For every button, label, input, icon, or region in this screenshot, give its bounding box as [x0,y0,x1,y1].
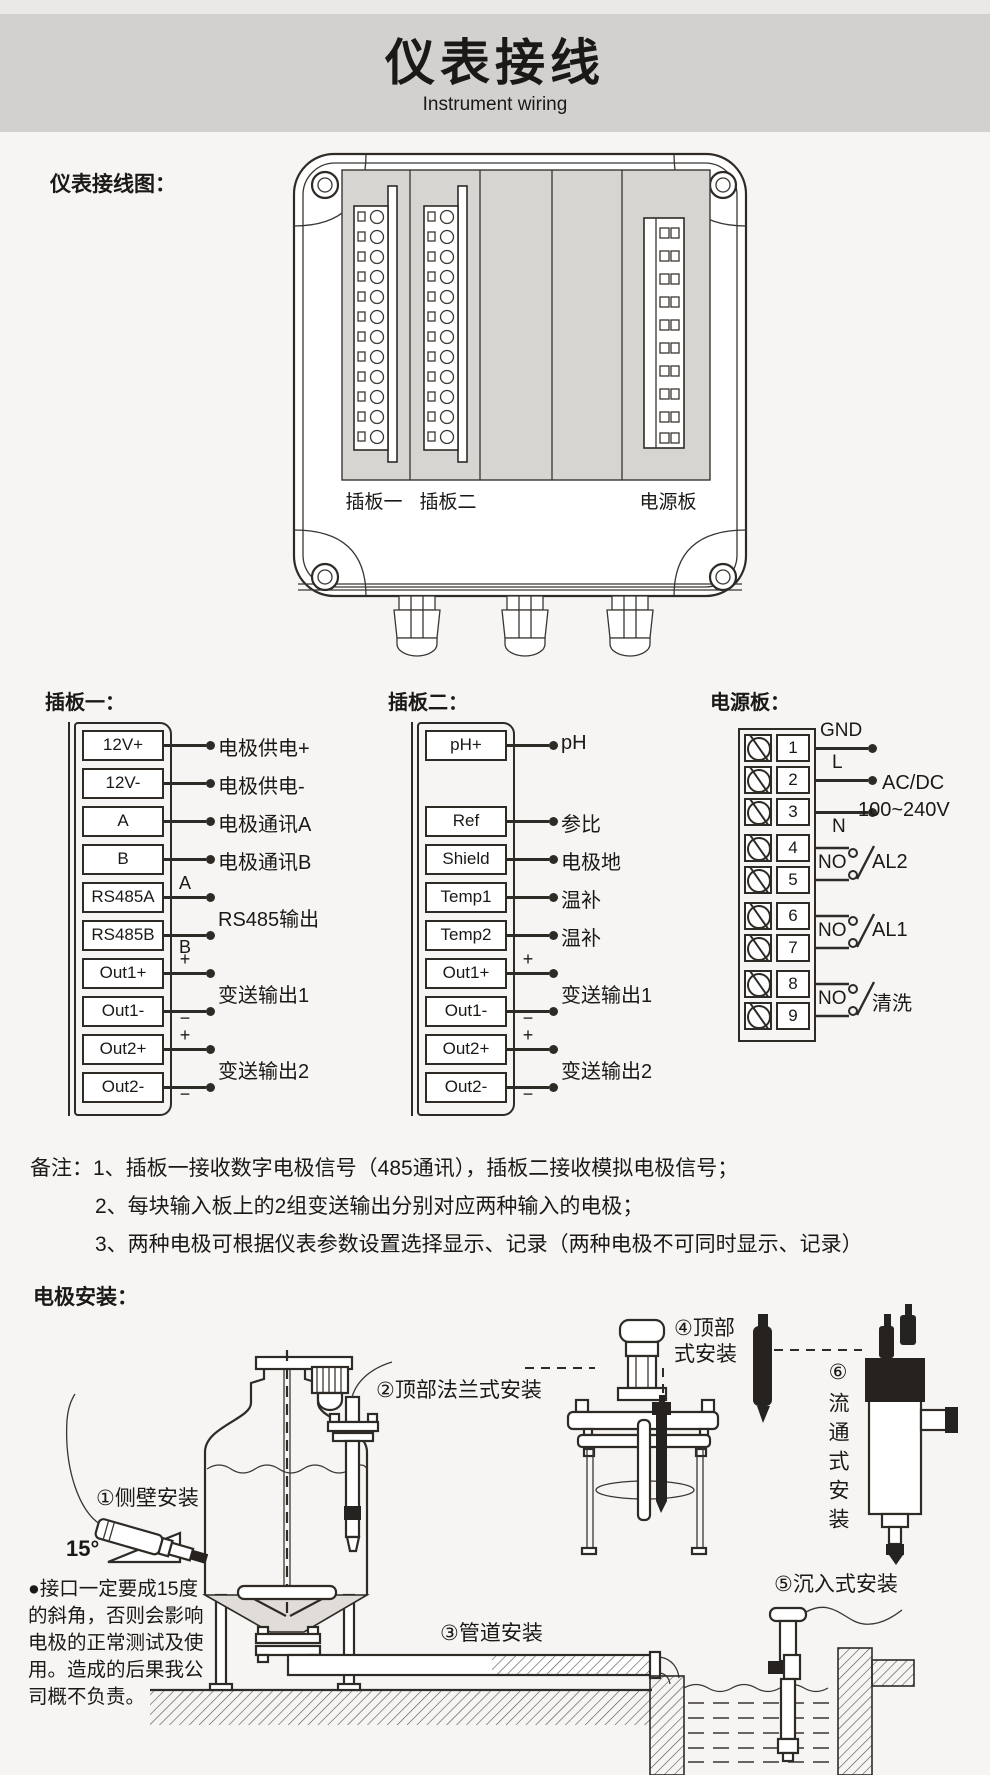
terminal-box: Out2+ [82,1034,164,1065]
wire [164,972,206,975]
terminal-number: 5 [776,866,810,894]
terminal-box: Shield [425,844,507,875]
notes-prefix: 备注： [30,1157,93,1180]
screw-terminal-icon [744,798,772,826]
wire-mark-l: L [832,752,843,774]
install-label-5: ⑤沉入式安装 [774,1572,898,1598]
wire [816,779,868,782]
terminal-box: Out1- [82,996,164,1027]
board1-title: 插板一： [45,686,125,715]
stirred-tank [205,1350,367,1690]
power-board-diagram: 电源板： 1 2 3 4 5 6 7 8 9 GND L N AC/DC 100… [700,680,990,1130]
instrument-enclosure-diagram: 插板一 插板二 电源板 [288,140,758,685]
wire [164,744,206,747]
wire-label: 参比 [561,808,601,837]
terminal-box: Temp2 [425,920,507,951]
board2-strip-edge [411,722,413,1116]
wire [816,747,868,750]
screw-terminal-icon [744,934,772,962]
wire [507,858,549,861]
wire-label: pH [561,732,587,755]
wire-label: 电极通讯B [218,846,311,875]
terminal-number: 2 [776,766,810,794]
slot1-label: 插板一 [345,491,402,513]
install-label-6: ⑥流通式安装 [822,1360,852,1570]
wire-mark-plus: + [172,949,198,970]
terminal-box: Temp1 [425,882,507,913]
terminal-box: Out1+ [82,958,164,989]
page-title: 仪表接线 [0,14,990,90]
wire-label: 变送输出2 [561,1055,652,1084]
terminal-box: pH+ [425,730,507,761]
wire-mark-plus: + [172,1025,198,1046]
cable-glands [394,596,653,656]
wiring-diagram-section-label: 仪表接线图： [50,168,176,198]
power-board-title: 电源板： [710,686,790,715]
relay-label-al1: AL1 [872,919,908,942]
screw-terminal-icon [744,902,772,930]
wire [164,782,206,785]
wire-label: 电极供电+ [218,732,310,761]
terminal-number: 7 [776,934,810,962]
slot2-terminal-strip [424,186,467,462]
screw-terminal-icon [744,734,772,762]
flow-cell [865,1304,958,1565]
install-label-3: ③管道安装 [440,1621,543,1647]
wire-mark-minus: − [515,1084,541,1105]
screw-terminal-icon [744,766,772,794]
install-angle-label: 15° [66,1536,99,1562]
electrode-probe [753,1314,772,1423]
no-mark: NO [818,988,847,1010]
terminal-box: B [82,844,164,875]
wire-label: 电极地 [561,846,621,875]
wire [164,820,206,823]
terminal-number: 3 [776,798,810,826]
wire [507,820,549,823]
power-slot-label: 电源板 [639,491,696,513]
terminal-box: Out1+ [425,958,507,989]
wire-label: 温补 [561,884,601,913]
no-mark: NO [818,920,847,942]
notes-line-2: 2、每块输入板上的2组变送输出分别对应两种输入的电极； [95,1190,643,1220]
no-mark: NO [818,852,847,874]
screw-terminal-icon [744,1002,772,1030]
power-terminal-strip [644,218,684,448]
terminal-box: RS485B [82,920,164,951]
wire-mark-gnd: GND [820,720,862,742]
terminal-box: Ref [425,806,507,837]
wire-label: 电极供电- [218,770,305,799]
wire-mark-a: A [172,873,198,894]
wire [164,896,206,899]
terminal-number: 9 [776,1002,810,1030]
screw-terminal-icon [744,970,772,998]
wire-mark-minus: − [172,1084,198,1105]
wire-label: 变送输出2 [218,1055,309,1084]
board1-strip-edge [68,722,70,1116]
top-strip [0,0,990,14]
wire [507,896,549,899]
wire-label: 温补 [561,922,601,951]
terminal-box: Out2- [425,1072,507,1103]
board2-diagram: 插板二： pH+ Ref Shield Temp1 Temp2 Out1+ Ou… [385,680,715,1130]
wire [164,1048,206,1051]
terminal-box: A [82,806,164,837]
wire [164,858,206,861]
slot1-terminal-strip [354,186,397,462]
acdc-label: AC/DC [882,772,944,795]
terminal-box: 12V- [82,768,164,799]
wire-mark-n: N [832,816,846,838]
wire [507,1048,549,1051]
terminal-number: 8 [776,970,810,998]
wire [507,934,549,937]
terminal-number: 1 [776,734,810,762]
board1-diagram: 插板一： 12V+ 12V- A B RS485A RS485B Out1+ O… [42,680,372,1130]
terminal-box: 12V+ [82,730,164,761]
wire-mark-plus: + [515,1025,541,1046]
notes-line-3: 3、两种电极可根据仪表参数设置选择显示、记录（两种电极不可同时显示、记录） [95,1228,863,1258]
voltage-range-label: 100~240V [858,799,950,822]
wire [507,744,549,747]
wire-label: 变送输出1 [561,979,652,1008]
terminal-number: 4 [776,834,810,862]
install-label-2: ②顶部法兰式安装 [376,1378,542,1404]
terminal-box: Out1- [425,996,507,1027]
slot2-label: 插板二 [419,491,476,513]
wire-label: 电极通讯A [218,808,311,837]
board2-title: 插板二： [388,686,468,715]
notes-line-1: 备注：1、插板一接收数字电极信号（485通讯），插板二接收模拟电极信号； [30,1152,738,1182]
terminal-box: Out2+ [425,1034,507,1065]
header-banner: 仪表接线 Instrument wiring [0,14,990,132]
note-item: 1、插板一接收数字电极信号（485通讯），插板二接收模拟电极信号； [93,1157,738,1180]
install-label-4: ④顶部 式安装 [674,1316,737,1368]
wire-label: 变送输出1 [218,979,309,1008]
terminal-box: RS485A [82,882,164,913]
terminal-box: Out2- [82,1072,164,1103]
install-warning-text: ●接口一定要成15度 的斜角，否则会影响 电极的正常测试及使 用。造成的后果我公… [28,1576,228,1711]
relay-label-wash: 清洗 [872,987,912,1016]
relay-label-al2: AL2 [872,851,908,874]
screw-terminal-icon [744,866,772,894]
install-label-1: ①侧壁安装 [96,1486,199,1512]
page-subtitle: Instrument wiring [0,94,990,116]
wire [507,972,549,975]
wire-mark-plus: + [515,949,541,970]
screw-terminal-icon [744,834,772,862]
terminal-number: 6 [776,902,810,930]
wire-label: RS485输出 [218,903,319,932]
